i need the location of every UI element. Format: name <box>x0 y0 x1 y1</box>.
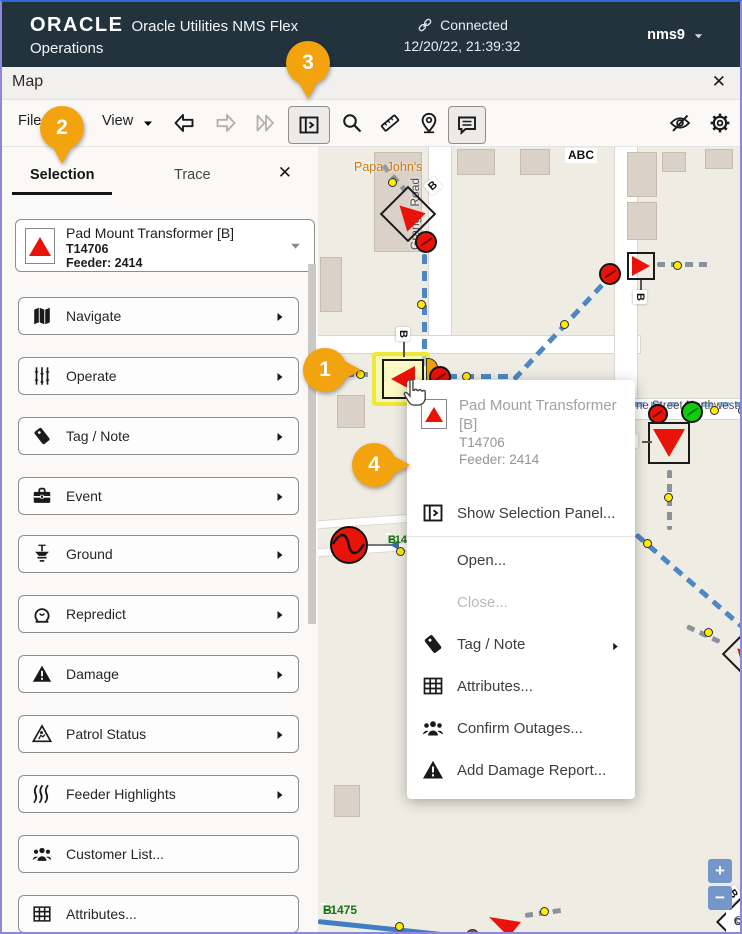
callout-1: 1 <box>303 348 347 392</box>
device-phase-label: B <box>396 327 410 341</box>
feeder-segment <box>657 262 712 267</box>
damage-label: Damage <box>66 666 261 682</box>
ground-icon <box>31 543 53 565</box>
device-type: Pad Mount Transformer [B] <box>66 225 234 241</box>
device-context-menu: Pad Mount Transformer [B] T14706 Feeder:… <box>407 380 635 799</box>
building <box>627 152 657 197</box>
caret-down-icon <box>693 30 704 41</box>
connection-status-block: Connected 12/20/22, 21:39:32 <box>372 16 552 54</box>
road-horizontal <box>318 335 641 354</box>
selection-panel: Selection Trace ✕ Pad Mount Transformer … <box>2 147 318 932</box>
map-switch-closed[interactable] <box>415 231 437 253</box>
map-node <box>395 922 404 931</box>
callout-4: 4 <box>352 443 396 487</box>
app-title-line1: Oracle Utilities NMS Flex <box>131 18 298 35</box>
feeder-tag: F14B <box>385 533 391 535</box>
hand-cursor <box>400 378 428 408</box>
view-menu[interactable]: View <box>102 113 133 129</box>
chevron-right-icon <box>274 728 286 740</box>
chevron-right-icon <box>274 310 286 322</box>
selection-panel-toggle-button[interactable] <box>288 106 330 144</box>
map-device-partial <box>489 917 521 932</box>
tag-note-button[interactable]: Tag / Note <box>18 417 299 455</box>
menu-item-show-selection-panel[interactable]: Show Selection Panel... <box>407 492 635 534</box>
poi-label: Papa John's <box>354 160 422 174</box>
callout-3: 3 <box>286 41 330 85</box>
repredict-label: Repredict <box>66 606 261 622</box>
settings-gear-button[interactable] <box>708 111 732 135</box>
abc-label: ABC <box>565 148 597 163</box>
link-icon <box>416 16 434 34</box>
user-menu[interactable]: nms9 <box>647 27 704 43</box>
event-label: Event <box>66 488 261 504</box>
map-node <box>643 539 652 548</box>
warning-icon <box>421 758 445 782</box>
map-node <box>664 493 673 502</box>
tag-note-label: Tag / Note <box>66 428 261 444</box>
device-id: T14706 <box>66 242 108 256</box>
operate-button[interactable]: Operate <box>18 357 299 395</box>
waves-icon <box>31 783 53 805</box>
connection-status: Connected <box>440 17 508 33</box>
measure-ruler-button[interactable] <box>378 111 402 135</box>
tab-trace[interactable]: Trace <box>174 167 211 183</box>
briefcase-icon <box>31 485 53 507</box>
building <box>662 152 686 172</box>
view-caret-down-icon[interactable] <box>142 117 154 129</box>
app-header: ORACLEOracle Utilities NMS Flex Operatio… <box>2 2 740 67</box>
map-switch-closed[interactable] <box>648 404 668 424</box>
building <box>627 202 657 240</box>
submenu-arrow-icon <box>610 639 621 650</box>
damage-button[interactable]: Damage <box>18 655 299 693</box>
app-title-line2: Operations <box>30 40 103 57</box>
app-brand-title: ORACLEOracle Utilities NMS Flex Operatio… <box>30 14 400 60</box>
map-node <box>710 406 719 415</box>
map-switch-open[interactable] <box>681 401 703 423</box>
context-menu-header: Pad Mount Transformer [B] T14706 Feeder:… <box>407 394 635 478</box>
connection-timestamp: 12/20/22, 21:39:32 <box>372 38 552 54</box>
chevron-right-icon <box>274 370 286 382</box>
patrol-status-label: Patrol Status <box>66 726 261 742</box>
panel-close-button[interactable]: ✕ <box>278 163 292 183</box>
panel-icon <box>421 501 445 525</box>
customer-list-button[interactable]: Customer List... <box>18 835 299 873</box>
map-icon <box>31 305 53 327</box>
search-button[interactable] <box>340 111 364 135</box>
fast-forward-button[interactable] <box>254 111 278 135</box>
map-window-title: Map <box>12 73 43 91</box>
location-pin-button[interactable] <box>417 111 441 135</box>
attributes-button[interactable]: Attributes... <box>18 895 299 933</box>
chevron-right-icon <box>274 548 286 560</box>
leader-line <box>642 441 652 443</box>
repredict-button[interactable]: Repredict <box>18 595 299 633</box>
map-node <box>560 320 569 329</box>
sidebar-scrollbar[interactable] <box>308 264 316 624</box>
sliders-icon <box>31 365 53 387</box>
menu-item-attributes[interactable]: Attributes... <box>407 665 635 707</box>
patrol-status-button[interactable]: Patrol Status <box>18 715 299 753</box>
context-device-type: Pad Mount Transformer [B] <box>459 396 621 434</box>
people-icon <box>31 843 53 865</box>
hide-layers-button[interactable] <box>668 111 692 135</box>
leader-line <box>403 342 405 357</box>
back-arrow-button[interactable] <box>172 111 196 135</box>
operate-label: Operate <box>66 368 261 384</box>
panel-tabs: Selection Trace ✕ <box>2 155 304 197</box>
device-phase-label: B <box>633 290 647 304</box>
map-pole-symbol <box>466 929 479 932</box>
building <box>320 257 342 312</box>
map-device-transformer[interactable] <box>627 252 655 280</box>
grid-icon <box>421 674 445 698</box>
building <box>457 149 495 175</box>
annotations-toggle-button[interactable] <box>448 106 486 144</box>
map-node <box>417 300 426 309</box>
warning-icon <box>31 663 53 685</box>
chevron-right-icon <box>274 668 286 680</box>
map-toolbar: File View <box>2 100 740 147</box>
navigate-label: Navigate <box>66 308 261 324</box>
map-node <box>540 907 549 916</box>
oracle-logo: ORACLE <box>30 14 123 36</box>
map-node <box>738 406 740 415</box>
map-switch-closed[interactable] <box>599 263 621 285</box>
chevron-right-icon <box>274 490 286 502</box>
device-feeder: Feeder: 2414 <box>66 256 142 270</box>
map-node <box>396 547 405 556</box>
nms-flex-window: ORACLEOracle Utilities NMS Flex Operatio… <box>0 0 742 934</box>
context-device-feeder: Feeder: 2414 <box>459 451 621 468</box>
callout-2: 2 <box>40 106 84 150</box>
repredict-icon <box>31 603 53 625</box>
attributes-label: Attributes... <box>66 906 286 922</box>
building <box>337 395 365 428</box>
zoom-in-button[interactable]: + <box>708 859 732 883</box>
map-attribution: © OpenStreetMap contributors. <box>726 910 740 932</box>
zoom-out-button[interactable]: − <box>708 886 732 910</box>
feeder-highlights-label: Feeder Highlights <box>66 786 261 802</box>
people-icon <box>421 716 445 740</box>
map-recloser-symbol[interactable] <box>330 526 368 564</box>
event-button[interactable]: Event <box>18 477 299 515</box>
menu-item-close: Close... <box>407 581 635 623</box>
menu-divider <box>407 536 635 537</box>
panel-icon <box>297 113 321 137</box>
caret-down-icon <box>289 240 302 253</box>
map-window-close-button[interactable]: ✕ <box>708 72 730 92</box>
menu-item-confirm-outages[interactable]: Confirm Outages... <box>407 707 635 749</box>
navigate-button[interactable]: Navigate <box>18 297 299 335</box>
map-node <box>673 261 682 270</box>
map-node <box>388 178 397 187</box>
device-selector-dropdown[interactable]: Pad Mount Transformer [B] T14706 Feeder:… <box>15 219 315 272</box>
feeder-tag: F1475B <box>320 903 326 905</box>
comment-icon <box>455 113 479 137</box>
map-device-transformer[interactable] <box>722 633 740 675</box>
tab-selection[interactable]: Selection <box>30 167 94 183</box>
customer-list-label: Customer List... <box>66 846 286 862</box>
ground-button[interactable]: Ground <box>18 535 299 573</box>
tag-icon <box>31 425 53 447</box>
map-device-transformer[interactable] <box>648 422 690 464</box>
feeder-highlights-button[interactable]: Feeder Highlights <box>18 775 299 813</box>
ground-label: Ground <box>66 546 261 562</box>
pad-mount-transformer-icon <box>25 228 55 264</box>
menu-item-add-damage-report[interactable]: Add Damage Report... <box>407 749 635 791</box>
feeder-segment <box>634 533 740 630</box>
user-name: nms9 <box>647 27 685 43</box>
building <box>705 149 733 169</box>
building <box>520 149 550 175</box>
file-menu[interactable]: File <box>18 113 41 129</box>
grid-icon <box>31 903 53 925</box>
map-node <box>704 628 713 637</box>
map-window-titlebar: Map ✕ <box>2 67 740 100</box>
context-device-id: T14706 <box>459 434 621 451</box>
menu-item-open[interactable]: Open... <box>407 539 635 581</box>
forward-arrow-button[interactable] <box>214 111 238 135</box>
building <box>334 785 360 817</box>
tag-icon <box>421 632 445 656</box>
chevron-right-icon <box>274 788 286 800</box>
leader-line <box>640 280 642 290</box>
chevron-right-icon <box>274 430 286 442</box>
chevron-right-icon <box>274 608 286 620</box>
patrol-icon <box>31 723 53 745</box>
menu-item-tag-note[interactable]: Tag / Note <box>407 623 635 665</box>
